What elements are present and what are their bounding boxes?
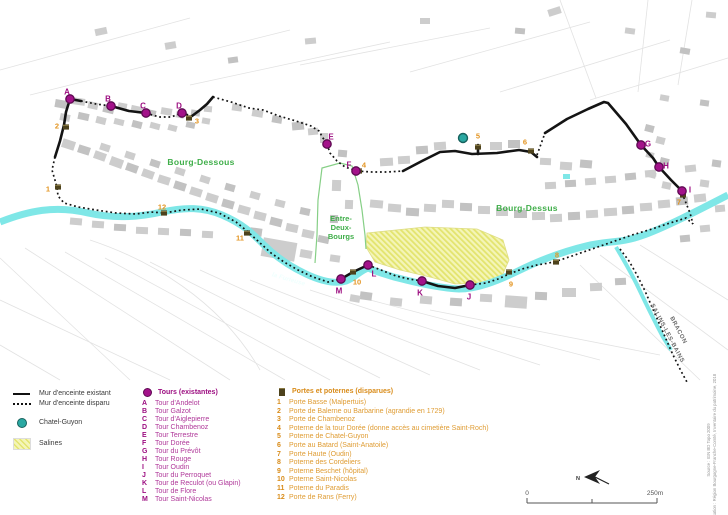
- gate-label-11: 11: [236, 234, 244, 243]
- gate-list-item-3: 3Porte de Chambenoz: [277, 416, 617, 425]
- gate-list-item-7: 7Porte Haute (Oudin): [277, 451, 617, 460]
- credits-text: Source : IGN BD Topo 2009Réalisation : R…: [706, 373, 717, 515]
- tower-label-H: H: [663, 162, 669, 171]
- gate-marker-8: [553, 259, 559, 264]
- entre-deux-bourgs-outline: [315, 163, 366, 263]
- gate-icon: [279, 388, 285, 396]
- gates-header-label: Portes et poternes (disparues): [292, 388, 393, 396]
- tower-marker-H: [655, 163, 663, 171]
- tower-label-G: G: [645, 140, 651, 149]
- wall-existing: [55, 97, 682, 288]
- map-label-3: Deux-: [331, 223, 352, 232]
- tower-label-C: C: [140, 102, 146, 111]
- gate-list-item-2: 2Porte de Balerne ou Barbarine (agrandie…: [277, 408, 617, 417]
- gate-marker-2: [63, 124, 69, 129]
- gates-header: Portes et poternes (disparues): [277, 388, 617, 396]
- gate-label-4: 4: [362, 161, 367, 170]
- towers-header: Tours (existantes): [142, 388, 272, 397]
- chatel-guyon-dot: [459, 134, 468, 143]
- gate-label-7: 7: [677, 198, 681, 207]
- legend-salines-label: Salines: [39, 440, 62, 448]
- tower-list-item-G: GTour du Prévôt: [142, 448, 272, 456]
- dotted-line-swatch: [12, 403, 31, 405]
- teal-dot-swatch: [12, 418, 31, 428]
- tower-marker-F: [352, 167, 360, 175]
- gate-marker-1: [55, 184, 61, 189]
- legend-chatel: Chatel-Guyon: [12, 418, 132, 428]
- river-furieuse: [0, 174, 728, 350]
- tower-icon: [143, 388, 152, 397]
- legend-gates: Portes et poternes (disparues) 1Porte Ba…: [277, 388, 617, 502]
- tower-label-A: A: [64, 88, 70, 97]
- legend-wall-gone: Mur d'enceinte disparu: [12, 400, 132, 408]
- tower-list-item-M: MTour Saint-Nicolas: [142, 496, 272, 504]
- gate-list-item-11: 11Poterne du Paradis: [277, 485, 617, 494]
- tower-label-F: F: [347, 161, 352, 170]
- tower-label-K: K: [417, 289, 423, 298]
- tower-label-J: J: [467, 293, 471, 302]
- tower-marker-K: [418, 277, 426, 285]
- gate-marker-9: [506, 269, 512, 274]
- gate-label-12: 12: [158, 203, 166, 212]
- legend-chatel-label: Chatel-Guyon: [39, 419, 82, 427]
- gate-marker-5: [475, 144, 481, 149]
- tower-label-E: E: [328, 133, 334, 142]
- solid-line-swatch: [12, 393, 31, 395]
- tower-list-item-F: FTour Dorée: [142, 440, 272, 448]
- legend-salines: Salines: [12, 438, 132, 450]
- gate-list-item-8: 8Poterne des Cordeliers: [277, 459, 617, 468]
- gate-list-item-12: 12Porte de Rans (Ferry): [277, 494, 617, 503]
- gate-list-item-4: 4Poterne de la tour Dorée (donne accès a…: [277, 425, 617, 434]
- tower-label-L: L: [372, 270, 377, 279]
- tower-marker-M: [337, 275, 345, 283]
- tower-marker-J: [466, 281, 474, 289]
- gate-list-item-6: 6Porte au Batard (Saint-Anatoile): [277, 442, 617, 451]
- tower-list-item-I: ITour Oudin: [142, 464, 272, 472]
- map-label-4: Bourgs: [328, 232, 354, 241]
- tower-label-D: D: [176, 102, 182, 111]
- legend-wall-gone-label: Mur d'enceinte disparu: [39, 400, 110, 408]
- tower-list-item-K: KTour de Reculot (ou Glapin): [142, 480, 272, 488]
- gate-label-8: 8: [555, 251, 559, 260]
- gate-marker-6: [528, 148, 534, 153]
- gate-marker-11: [244, 230, 250, 235]
- gate-list-item-10: 10Poterne Saint-Nicolas: [277, 476, 617, 485]
- tower-marker-L: [364, 261, 372, 269]
- map-label-1: Bourg-Dessus: [496, 203, 558, 213]
- tower-label-B: B: [105, 95, 111, 104]
- gate-marker-3: [186, 115, 192, 120]
- map-label-2: Entre-: [330, 214, 352, 223]
- tower-list-item-B: BTour Galzot: [142, 408, 272, 416]
- legend-towers: Tours (existantes) ATour d'AndelotBTour …: [142, 388, 272, 504]
- gate-label-1: 1: [46, 185, 50, 194]
- tower-list-item-D: DTour Chambenoz: [142, 424, 272, 432]
- map-page: 123456789101112 ABCDEFGHIJKLM Bourg-Dess…: [0, 0, 728, 515]
- svg-text:250m: 250m: [647, 490, 663, 497]
- towers-header-label: Tours (existantes): [158, 389, 218, 397]
- tower-list-item-L: LTour de Flore: [142, 488, 272, 496]
- gate-label-6: 6: [523, 138, 527, 147]
- gate-label-2: 2: [55, 122, 59, 131]
- tower-label-I: I: [689, 186, 691, 195]
- gate-label-9: 9: [509, 280, 513, 289]
- tower-list-item-H: HTour Rouge: [142, 456, 272, 464]
- gate-marker-10: [350, 269, 356, 274]
- tower-list-item-C: CTour d'Aiglepierre: [142, 416, 272, 424]
- tower-marker-I: [678, 187, 686, 195]
- legend-wall-existing-label: Mur d'enceinte existant: [39, 390, 111, 398]
- gate-label-10: 10: [353, 278, 361, 287]
- gate-label-3: 3: [195, 117, 199, 126]
- legend-wall-existing: Mur d'enceinte existant: [12, 390, 132, 398]
- gate-list-item-5: 5Poterne de Chatel-Guyon: [277, 433, 617, 442]
- tower-list-item-J: JTour du Perroquet: [142, 472, 272, 480]
- salines-swatch: [12, 438, 31, 450]
- map-label-0: Bourg-Dessous: [167, 157, 234, 167]
- tower-list-item-E: ETour Terrestre: [142, 432, 272, 440]
- gate-list-item-9: 9Poterne Beschet (hôpital): [277, 468, 617, 477]
- parcel-lines: [0, 0, 728, 380]
- tower-list-item-A: ATour d'Andelot: [142, 400, 272, 408]
- legend-symbols: Mur d'enceinte existant Mur d'enceinte d…: [12, 390, 132, 452]
- tower-label-M: M: [336, 287, 343, 296]
- gate-label-5: 5: [476, 132, 480, 141]
- gate-list-item-1: 1Porte Basse (Malpertuis): [277, 399, 617, 408]
